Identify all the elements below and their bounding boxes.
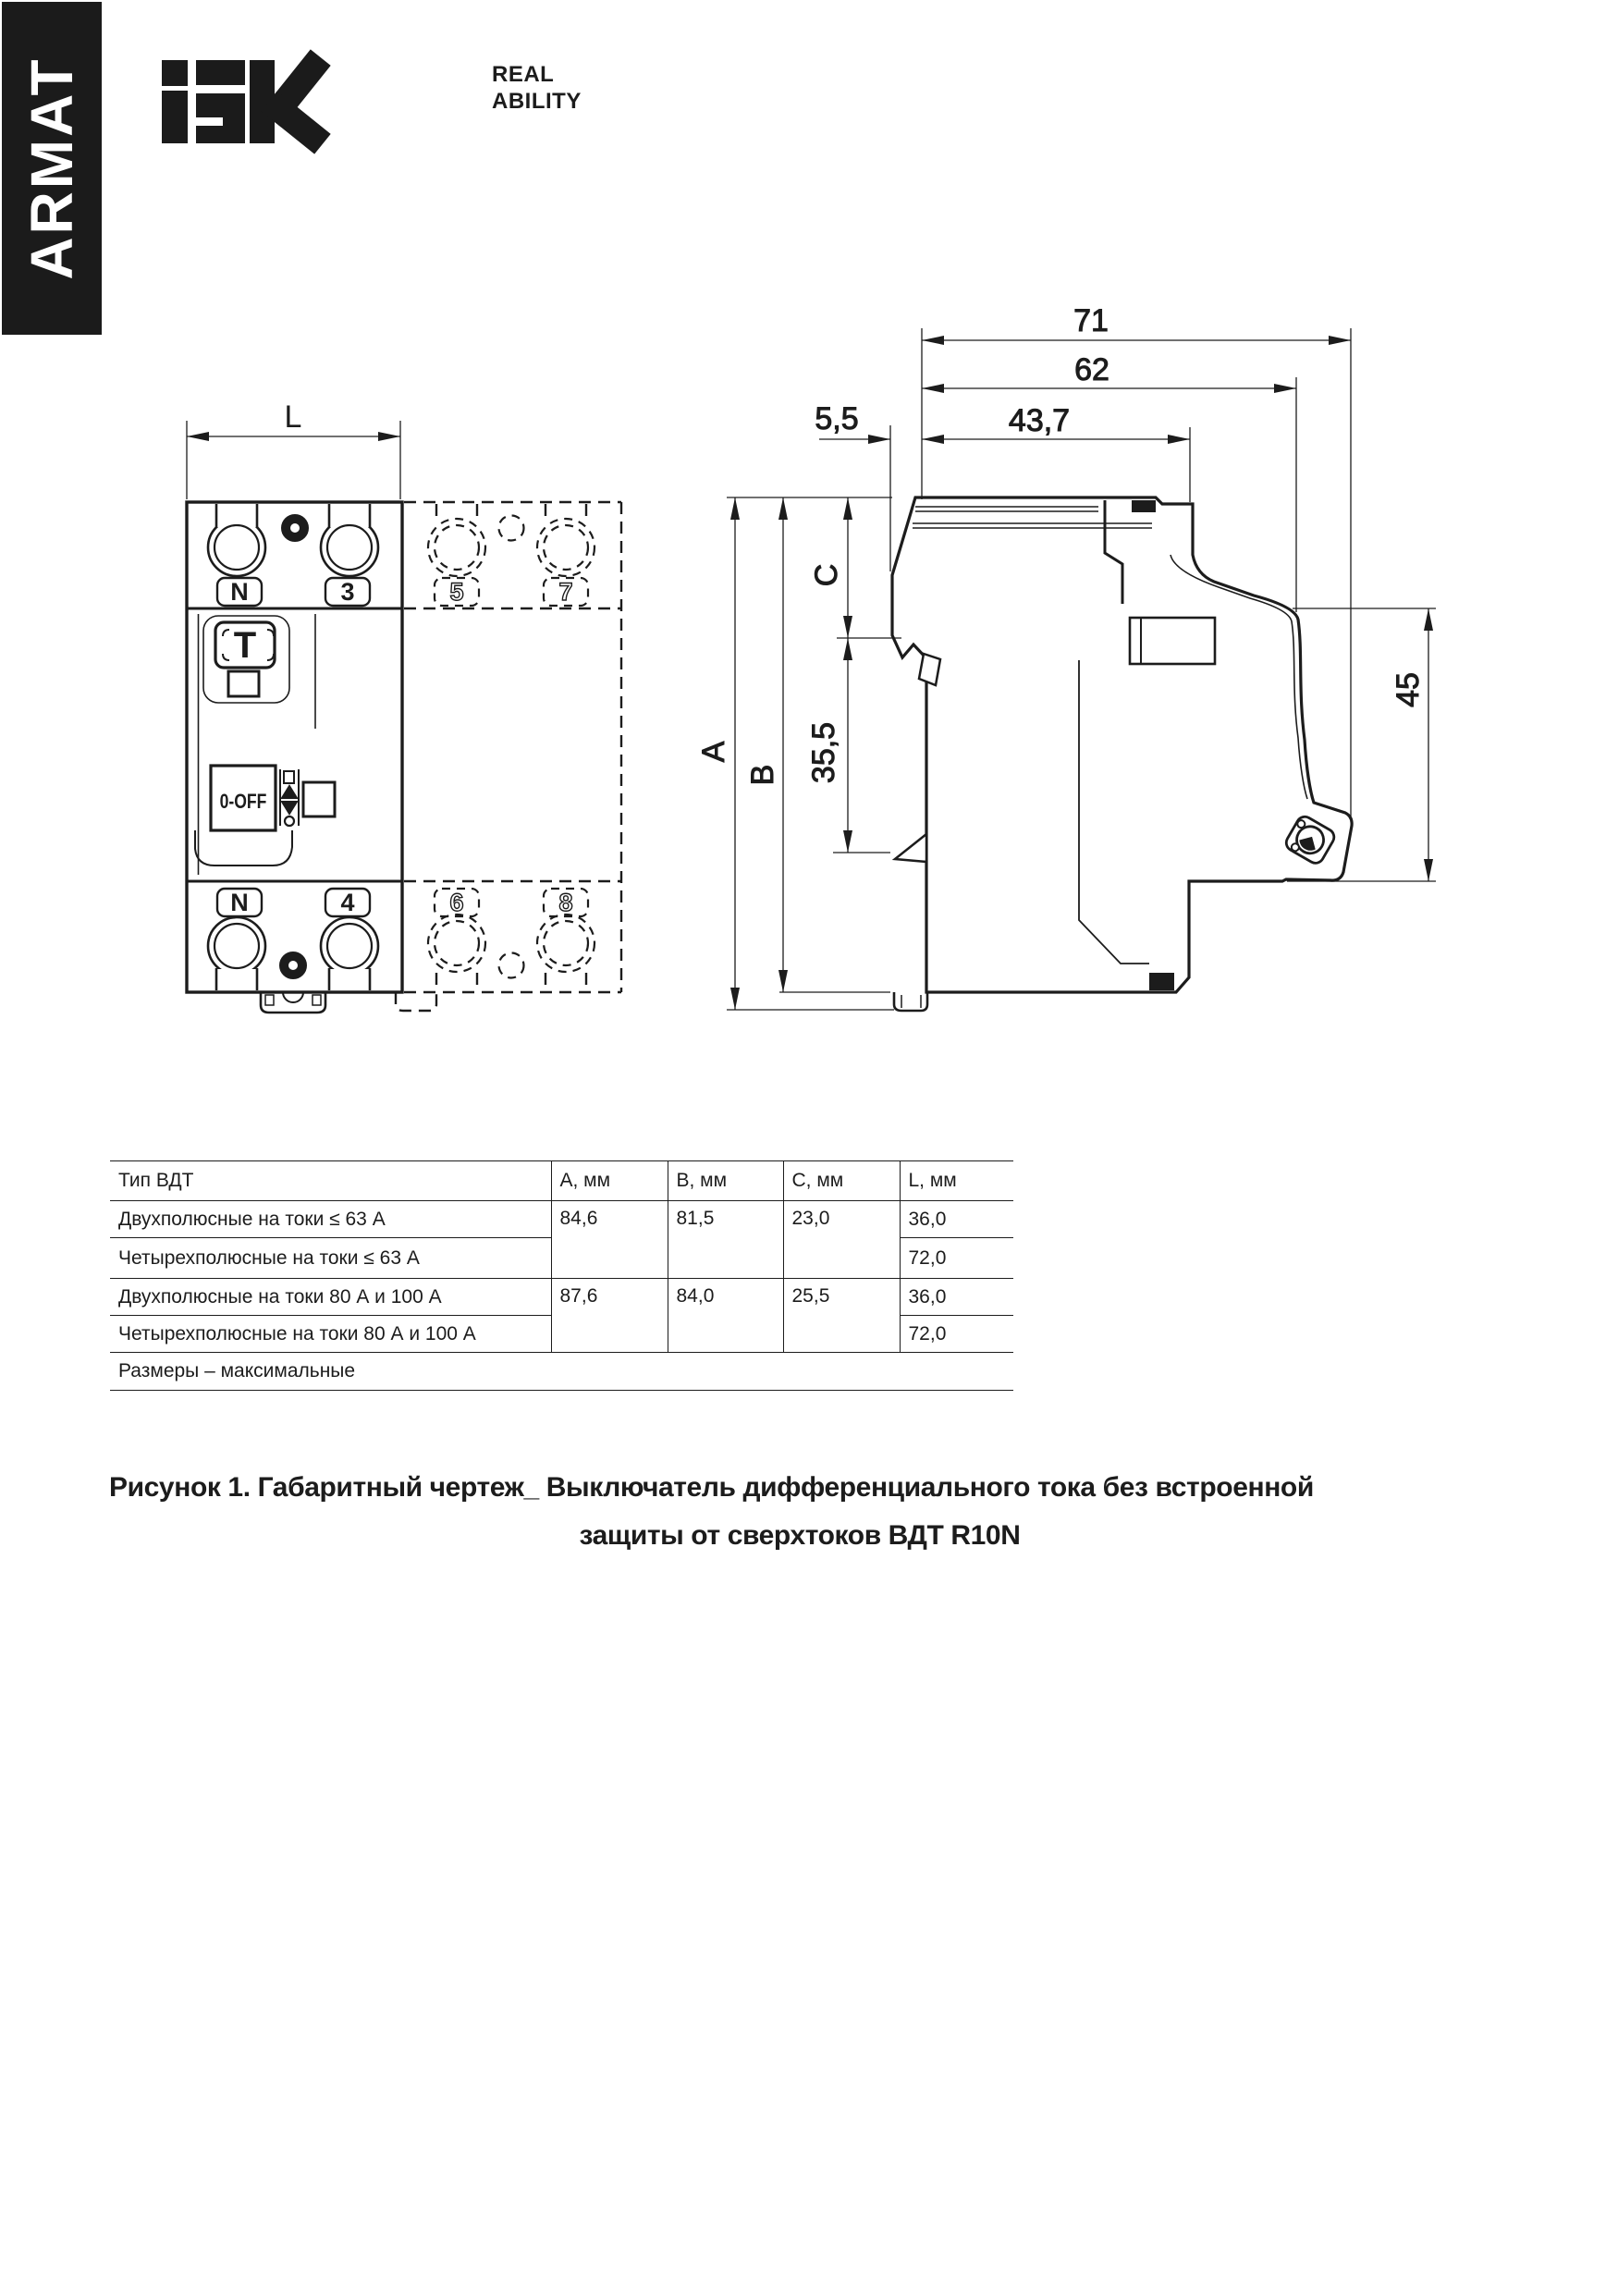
terminal-label-7: 7 — [558, 578, 572, 606]
table-row: Двухполюсные на токи ≤ 63 А 84,6 81,5 23… — [110, 1201, 1013, 1238]
switch-label: 0-OFF — [220, 791, 267, 813]
rocker-recess — [195, 830, 292, 866]
col-header-c: С, мм — [783, 1161, 900, 1201]
row3-c: 25,5 — [783, 1279, 900, 1353]
terminal-label-6: 6 — [449, 889, 463, 916]
row2-l: 72,0 — [900, 1238, 1013, 1279]
terminal-label-8: 8 — [558, 889, 572, 916]
rear-bottom-foot — [1149, 973, 1174, 990]
row3-l: 36,0 — [900, 1279, 1013, 1316]
row1-a: 84,6 — [551, 1201, 668, 1279]
row3-type: Двухполюсные на токи 80 А и 100 А — [110, 1279, 551, 1316]
terminal-label-5: 5 — [449, 578, 463, 606]
din-clip-lever — [919, 654, 940, 685]
side-view-drawing: 71 62 43,7 5,5 A B C 35,5 45 — [696, 303, 1436, 1011]
row1-type: Двухполюсные на токи ≤ 63 А — [110, 1201, 551, 1238]
table-footnote: Размеры – максимальные — [110, 1353, 1013, 1391]
second-module-dashed — [396, 502, 621, 1011]
dimensional-drawing: L N 3 — [0, 0, 1618, 2296]
col-header-type: Тип ВДТ — [110, 1161, 551, 1201]
front-view-drawing: L N 3 — [187, 399, 621, 1013]
terminal-top-right — [321, 504, 378, 576]
row3-b: 84,0 — [668, 1279, 783, 1353]
dim-45-label: 45 — [1391, 672, 1426, 707]
terminal-screw-flap — [1283, 814, 1337, 866]
device-body-front — [187, 502, 402, 992]
padlock-slot — [303, 782, 335, 816]
indicator-window — [228, 671, 259, 696]
row4-type: Четырехполюсные на токи 80 А и 100 А — [110, 1316, 551, 1353]
terminal-top-left — [208, 504, 265, 576]
datasheet-page: ARMAT REAL ABILITY — [0, 0, 1618, 2296]
switch-position-indicator — [280, 769, 299, 826]
din-clip-side — [894, 992, 927, 1011]
terminal-bottom-right — [321, 917, 378, 990]
side-marking-area — [1130, 618, 1215, 664]
dim-55-label: 5,5 — [815, 401, 858, 436]
table-footnote-row: Размеры – максимальные — [110, 1353, 1013, 1391]
col-header-b: В, мм — [668, 1161, 783, 1201]
screw-bottom — [284, 956, 302, 975]
dim-437-label: 43,7 — [1009, 403, 1070, 438]
dim-71-label: 71 — [1073, 303, 1109, 338]
col-header-l: L, мм — [900, 1161, 1013, 1201]
test-button-label: T — [234, 625, 256, 666]
terminal-bottom-left — [208, 917, 265, 990]
terminal-label-4: 4 — [340, 889, 354, 916]
terminal-label-N-bottom: N — [230, 889, 249, 916]
row4-l: 72,0 — [900, 1316, 1013, 1353]
dimensions-table: Тип ВДТ А, мм В, мм С, мм L, мм Двухполю… — [110, 1160, 1013, 1391]
table-row: Двухполюсные на токи 80 А и 100 А 87,6 8… — [110, 1279, 1013, 1316]
row1-l: 36,0 — [900, 1201, 1013, 1238]
terminal-label-N-top: N — [230, 578, 249, 606]
figure-caption-line1: Рисунок 1. Габаритный чертеж_ Выключател… — [109, 1472, 1314, 1504]
dim-62-label: 62 — [1074, 352, 1109, 387]
dim-C-label: C — [809, 564, 844, 587]
dim-B-label: B — [745, 765, 780, 786]
dim-355-label: 35,5 — [806, 722, 841, 783]
din-hook — [895, 834, 926, 862]
side-panel-divider — [1105, 500, 1122, 604]
col-header-a: А, мм — [551, 1161, 668, 1201]
din-clip-front — [261, 992, 325, 1013]
row1-b: 81,5 — [668, 1201, 783, 1279]
screw-top — [286, 519, 304, 537]
rear-top-tab — [1132, 500, 1156, 512]
figure-caption-line2: защиты от сверхтоков ВДТ R10N — [109, 1520, 1490, 1552]
row3-a: 87,6 — [551, 1279, 668, 1353]
terminal-label-3: 3 — [340, 578, 354, 606]
row2-type: Четырехполюсные на токи ≤ 63 А — [110, 1238, 551, 1279]
dim-A-label: A — [696, 741, 731, 762]
dim-L-label: L — [285, 399, 302, 435]
row1-c: 23,0 — [783, 1201, 900, 1279]
side-profile-interior — [913, 507, 1307, 964]
